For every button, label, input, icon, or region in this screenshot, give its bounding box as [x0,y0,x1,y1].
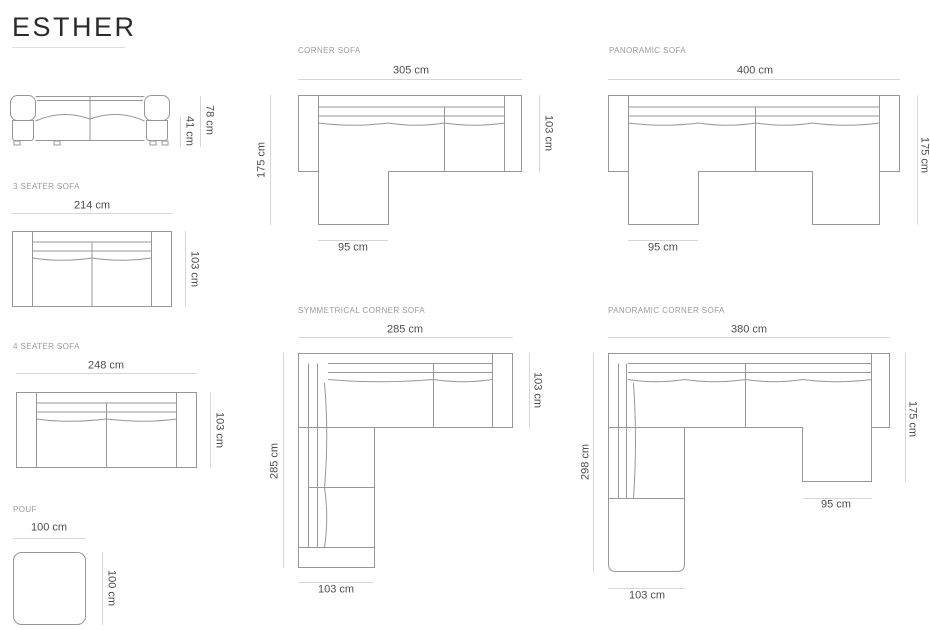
panoramic-corner-right-depth-dim: 175 cm [907,401,918,437]
pouf-width-dim: 100 cm [31,523,67,534]
panoramic-corner-sofa-label: PANORAMIC CORNER SOFA [608,307,725,315]
front-view-seat-height-dim-line [180,117,181,147]
panoramic-corner-width-dim: 380 cm [731,325,767,336]
pouf-label: POUF [13,506,37,514]
three-seater-depth-dim-line [185,231,186,307]
corner-sofa-total-depth-dim-line [270,95,271,225]
front-view-height-dim-line [200,96,201,147]
four-seater-label: 4 SEATER SOFA [13,343,80,351]
panoramic-sofa-width-dim-line [608,79,900,80]
three-seater-drawing [12,231,172,307]
corner-sofa-depth-dim: 103 cm [543,115,554,151]
front-view-seat-height-dim: 41 cm [184,116,195,146]
symmetrical-corner-total-depth-dim: 285 cm [270,443,281,479]
symmetrical-corner-sofa-label: SYMMETRICAL CORNER SOFA [298,307,425,315]
four-seater-width-dim-line [16,373,197,374]
symmetrical-corner-width-dim-line [298,337,513,338]
symmetrical-corner-total-depth-dim-line [283,353,284,568]
panoramic-sofa-drawing [608,95,900,225]
panoramic-sofa-total-depth-dim: 175 cm [919,137,930,173]
panoramic-corner-left-depth-dim-line [593,353,594,572]
panoramic-corner-chaise-dim: 95 cm [821,500,851,511]
corner-sofa-width-dim-line [298,79,522,80]
corner-sofa-label: CORNER SOFA [298,47,361,55]
four-seater-depth-dim-line [210,392,211,468]
pouf-drawing [13,552,86,625]
symmetrical-corner-bottom-dim: 103 cm [318,585,354,596]
corner-sofa-depth-dim-line [539,95,540,172]
panoramic-corner-width-dim-line [608,337,890,338]
corner-sofa-total-depth-dim: 175 cm [257,142,268,178]
pouf-depth-dim-line [102,552,103,625]
symmetrical-corner-depth-dim: 103 cm [532,372,543,408]
pouf-depth-dim: 100 cm [106,570,117,606]
front-view-height-dim: 78 cm [204,105,215,135]
symmetrical-corner-sofa-drawing [298,353,513,568]
pouf-width-dim-line [13,538,86,539]
corner-sofa-width-dim: 305 cm [393,66,429,77]
panoramic-sofa-chaise-dim: 95 cm [648,243,678,254]
spec-sheet: ESTHER 78 cm 41 cm 3 SEATER SOFA 214 cm … [0,0,930,630]
three-seater-depth-dim: 103 cm [189,251,200,287]
panoramic-sofa-width-dim: 400 cm [737,66,773,77]
corner-sofa-chaise-dim: 95 cm [338,243,368,254]
four-seater-depth-dim: 103 cm [214,412,225,448]
symmetrical-corner-depth-dim-line [529,353,530,428]
title-underline [12,47,125,48]
three-seater-width-dim: 214 cm [74,201,110,212]
panoramic-corner-bottom-dim: 103 cm [629,591,665,602]
three-seater-label: 3 SEATER SOFA [13,183,80,191]
panoramic-corner-left-depth-dim: 298 cm [581,444,592,480]
four-seater-width-dim: 248 cm [88,361,124,372]
corner-sofa-drawing [298,95,522,225]
sofa-front-view-drawing [10,93,170,151]
four-seater-drawing [16,392,197,468]
panoramic-corner-sofa-drawing [608,353,890,572]
three-seater-width-dim-line [12,213,172,214]
page-title: ESTHER [12,14,137,41]
panoramic-sofa-label: PANORAMIC SOFA [609,47,686,55]
symmetrical-corner-width-dim: 285 cm [387,325,423,336]
